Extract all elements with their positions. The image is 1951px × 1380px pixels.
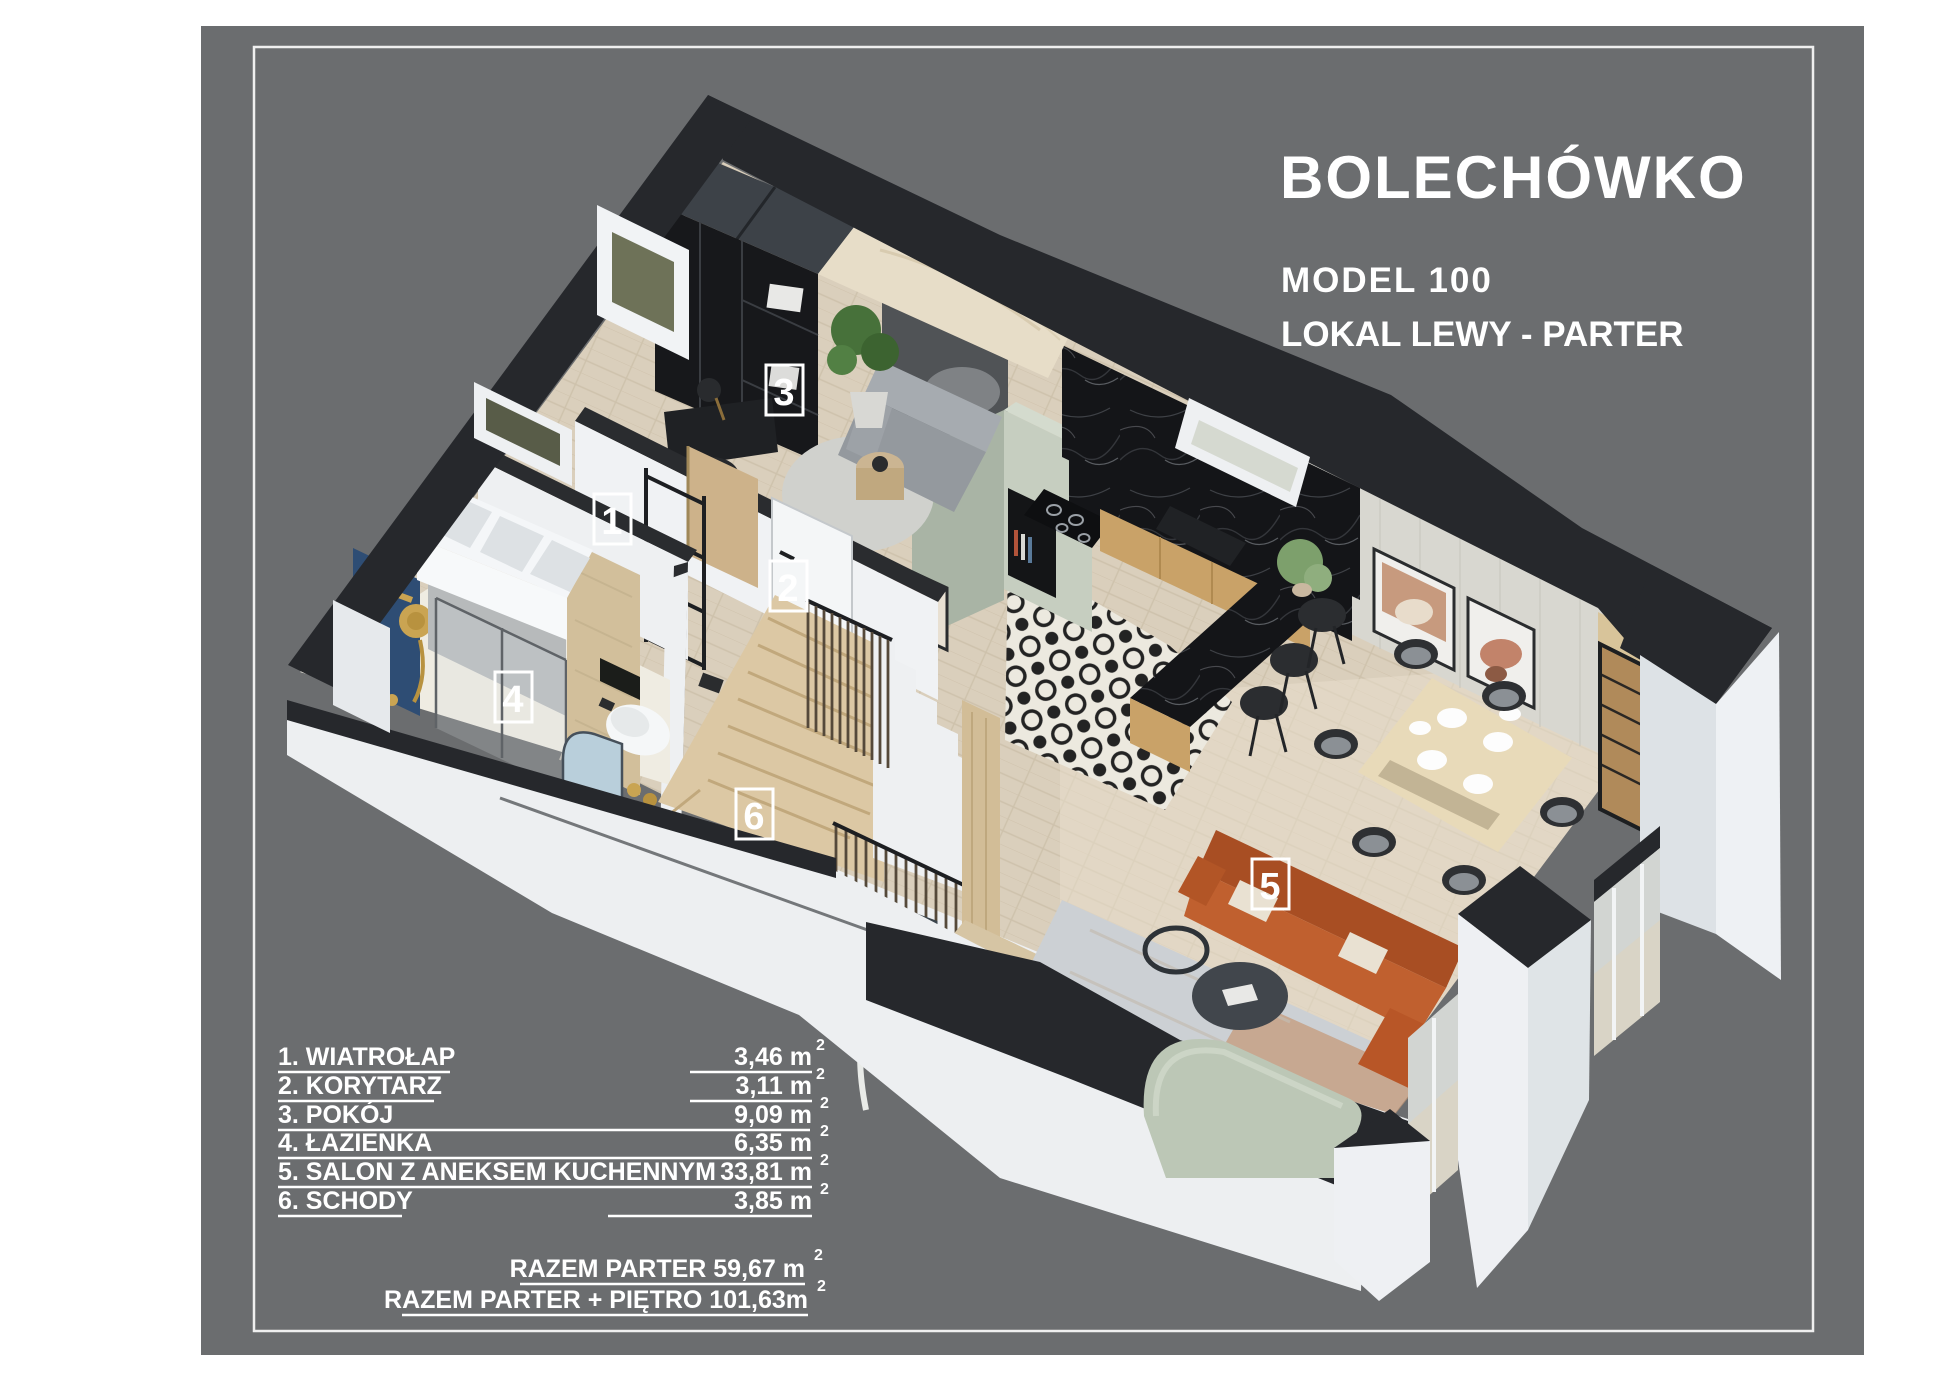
svg-text:3,11 m: 3,11 m [736,1072,812,1100]
svg-text:2: 2 [820,1152,829,1169]
svg-text:2: 2 [820,1123,829,1140]
svg-text:2: 2 [814,1247,823,1264]
svg-text:2: 2 [816,1066,825,1083]
svg-text:3: 3 [773,372,794,414]
svg-text:3,85 m: 3,85 m [734,1187,812,1215]
svg-text:RAZEM PARTER 59,67 m: RAZEM PARTER 59,67 m [510,1255,805,1283]
svg-text:2: 2 [820,1181,829,1198]
svg-text:9,09 m: 9,09 m [734,1101,812,1129]
svg-text:4. ŁAZIENKA: 4. ŁAZIENKA [278,1129,432,1157]
svg-text:4: 4 [502,679,523,721]
svg-text:2. KORYTARZ: 2. KORYTARZ [278,1072,442,1100]
svg-text:6: 6 [743,796,764,838]
svg-text:2: 2 [820,1095,829,1112]
svg-text:5: 5 [1259,866,1280,908]
svg-text:3,46 m: 3,46 m [734,1043,812,1071]
svg-text:1: 1 [601,501,622,543]
svg-text:5. SALON Z ANEKSEM KUCHENNYM: 5. SALON Z ANEKSEM KUCHENNYM [278,1158,716,1186]
svg-text:1. WIATROŁAP: 1. WIATROŁAP [278,1043,455,1071]
svg-text:2: 2 [777,568,798,610]
svg-text:2: 2 [816,1037,825,1054]
svg-text:MODEL 100: MODEL 100 [1281,261,1493,300]
svg-text:6,35 m: 6,35 m [734,1129,812,1157]
svg-text:33,81 m: 33,81 m [720,1158,812,1186]
svg-text:2: 2 [817,1278,826,1295]
svg-text:6. SCHODY: 6. SCHODY [278,1187,413,1215]
svg-text:BOLECHÓWKO: BOLECHÓWKO [1280,144,1747,211]
svg-text:RAZEM PARTER + PIĘTRO 101,63m: RAZEM PARTER + PIĘTRO 101,63m [384,1286,808,1314]
svg-text:3. POKÓJ: 3. POKÓJ [278,1099,393,1129]
svg-text:LOKAL LEWY - PARTER: LOKAL LEWY - PARTER [1281,315,1684,354]
